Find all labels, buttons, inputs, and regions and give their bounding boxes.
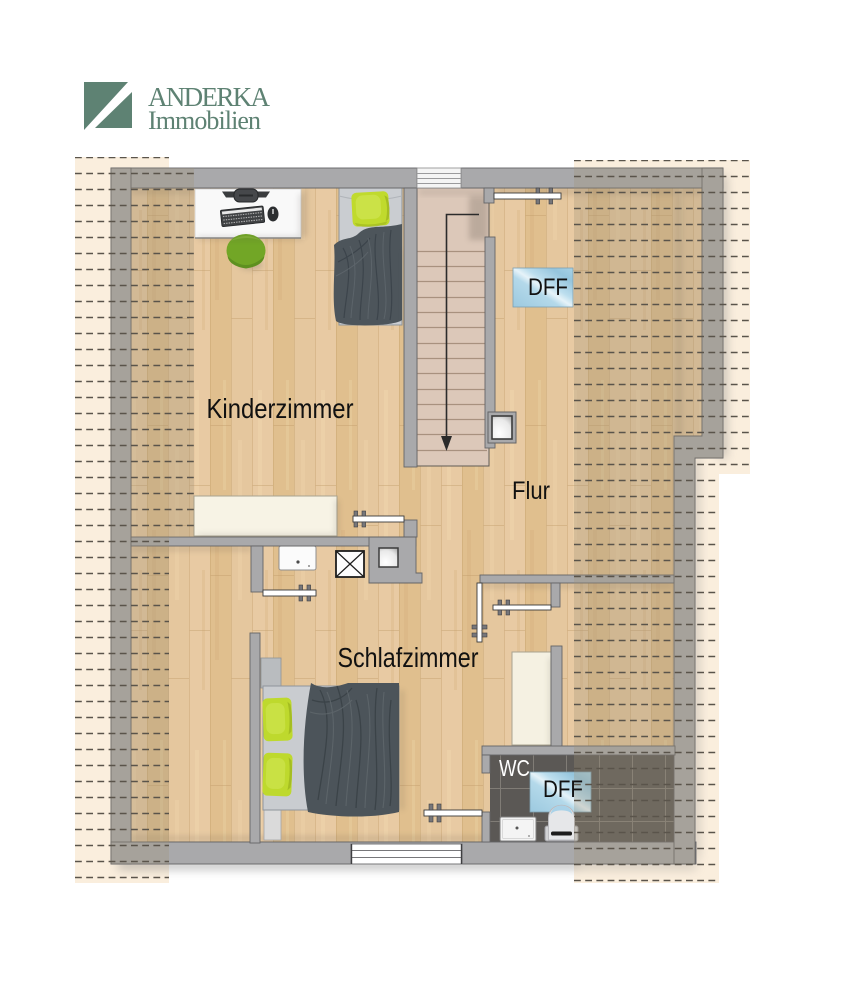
svg-text:DFF: DFF — [543, 776, 583, 803]
svg-text:Flur: Flur — [512, 477, 550, 505]
svg-text:Schlafzimmer: Schlafzimmer — [338, 642, 479, 673]
svg-text:Immobilien: Immobilien — [148, 106, 261, 135]
svg-text:WC: WC — [499, 755, 530, 781]
svg-text:DFF: DFF — [528, 274, 568, 301]
svg-text:Kinderzimmer: Kinderzimmer — [207, 393, 354, 424]
